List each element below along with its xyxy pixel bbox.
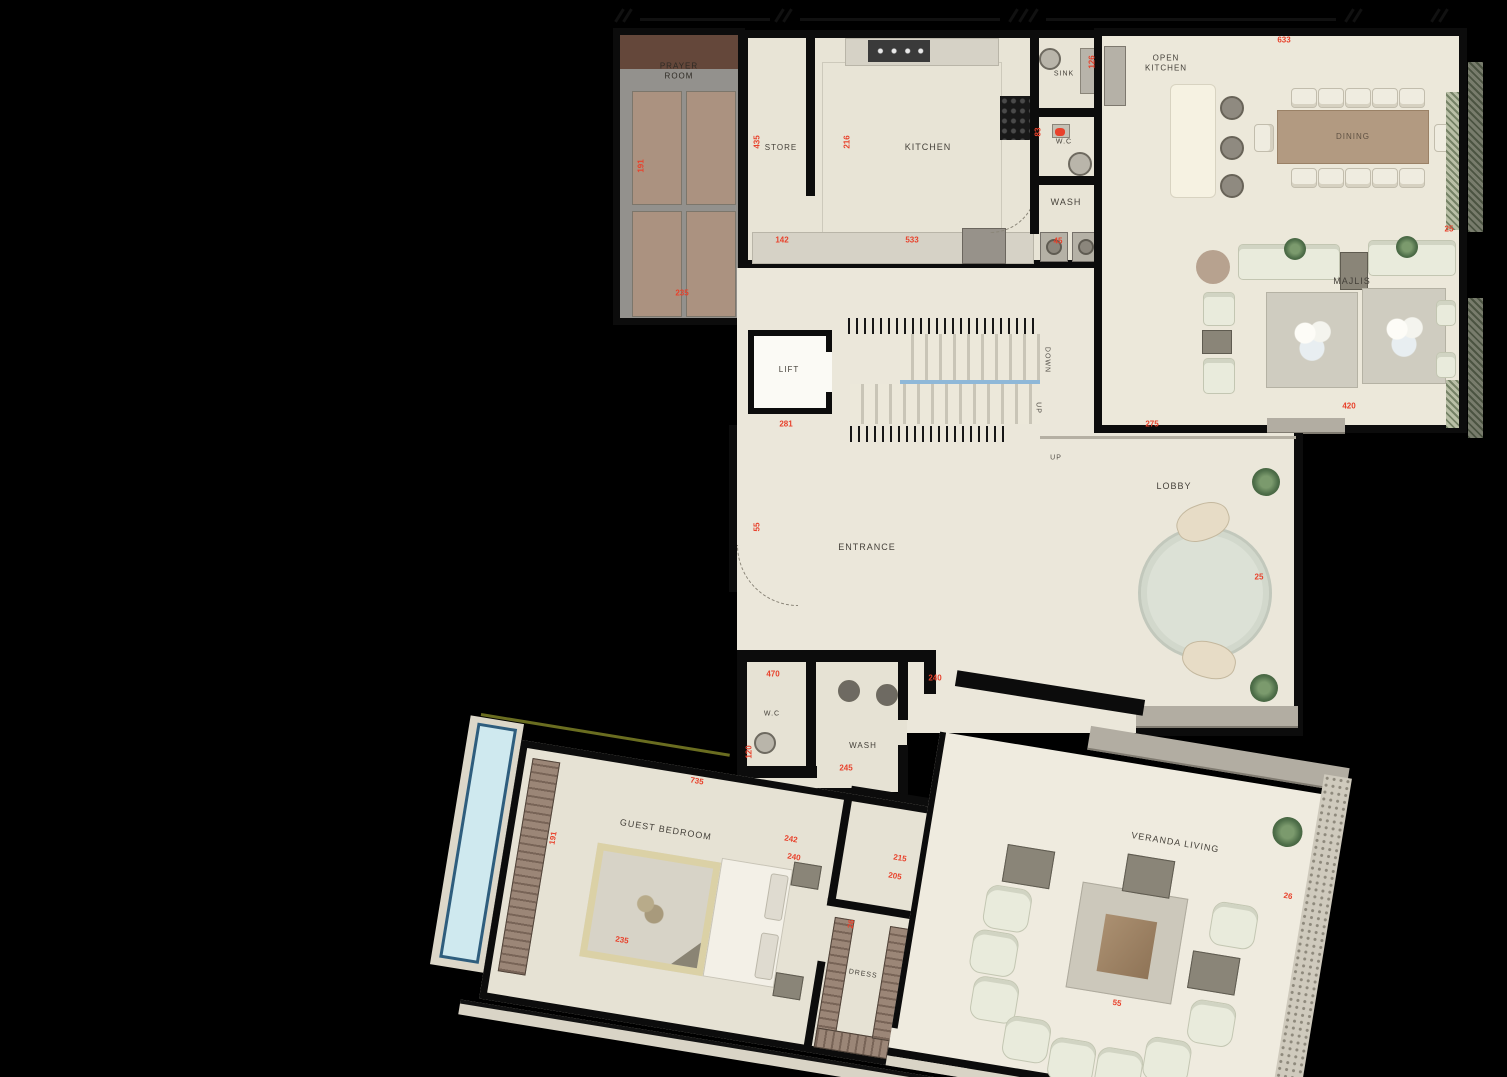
majlis-armchair	[1203, 358, 1235, 394]
stair-comb	[848, 318, 1038, 334]
store-wall	[806, 38, 815, 196]
wc-wall	[737, 650, 933, 662]
fridge-icon	[1104, 46, 1126, 106]
stairs-up-lower-label: UP	[1050, 453, 1062, 462]
stair-flight-lower	[850, 384, 1040, 424]
veranda-side-table	[1187, 950, 1241, 995]
bedroom-rug	[579, 843, 721, 977]
veranda-cushion	[981, 883, 1034, 934]
lift-door-jamb	[826, 392, 832, 414]
stairs-down-label: DOWN	[1042, 347, 1051, 373]
dining-chair	[1318, 88, 1344, 108]
cabinet-icon	[1080, 48, 1095, 94]
prayer-mat	[632, 211, 682, 317]
dining-chair	[1399, 168, 1425, 188]
dining-chair	[1345, 88, 1371, 108]
wash-fixture-icon	[838, 680, 860, 702]
pillow	[764, 873, 789, 921]
veranda-cushion	[968, 928, 1021, 979]
stair-flight-upper	[900, 334, 1040, 382]
majlis-armchair	[1203, 292, 1235, 326]
wash-wall	[898, 662, 908, 720]
wc-mid-label: W.C	[764, 709, 780, 718]
prayer-room-label: PRAYER ROOM	[644, 62, 714, 83]
entrance-label: ENTRANCE	[838, 542, 896, 554]
stool-icon	[1220, 136, 1244, 160]
wc-label: W.C	[1056, 137, 1072, 146]
dimension-line	[640, 18, 770, 21]
floor-joint-line	[1040, 436, 1296, 439]
dining-chair	[1318, 168, 1344, 188]
stool-icon	[1220, 96, 1244, 120]
wash-label: WASH	[1051, 197, 1082, 209]
round-table	[1196, 250, 1230, 284]
counter-burners-icon	[1000, 96, 1032, 140]
prayer-mat	[686, 211, 736, 317]
veranda-wing: VERANDA LIVING	[884, 702, 1371, 1077]
plant-icon	[1396, 236, 1418, 258]
wash-mid-label: WASH	[849, 741, 877, 751]
dining-label: DINING	[1336, 132, 1370, 142]
hedge-strip	[1446, 380, 1459, 428]
dining-chair	[1345, 168, 1371, 188]
rug-pattern	[626, 884, 673, 934]
dining-chair	[1254, 124, 1274, 152]
walkway	[1136, 706, 1298, 728]
entrance-wall	[729, 425, 737, 592]
flower-decor	[1289, 317, 1335, 363]
service-wall	[1030, 176, 1096, 185]
kitchen-sink-icon	[962, 228, 1006, 264]
flower-decor	[1381, 313, 1427, 359]
dimension-tick	[1028, 8, 1038, 22]
washing-machine-icon	[1040, 232, 1068, 262]
lobby-label: LOBBY	[1156, 481, 1191, 493]
wash-fixture-icon	[876, 684, 898, 706]
rug-fold	[671, 938, 701, 968]
kitchen-label: KITCHEN	[905, 142, 952, 154]
majlis-armchair	[1436, 352, 1456, 378]
majlis-side-table	[1202, 330, 1232, 354]
majlis-armchair	[1436, 300, 1456, 326]
lift-label: LIFT	[779, 365, 799, 375]
outer-hedge	[1468, 62, 1483, 232]
veranda-side-table	[1002, 844, 1056, 889]
sink-room-label: SINK	[1054, 69, 1074, 78]
prayer-mat	[686, 91, 736, 205]
dimension-line	[800, 18, 1000, 21]
veranda-cushion	[1045, 1036, 1098, 1077]
service-wall	[1030, 108, 1096, 117]
dimension-line	[1046, 18, 1336, 21]
range-stove-icon	[868, 40, 930, 62]
toilet-icon	[1055, 128, 1065, 136]
veranda-side-table	[1122, 854, 1176, 899]
floor-plan: PRAYER ROOM STORE KITCHEN SINK W.C WASH …	[0, 0, 1507, 1077]
stair-comb	[850, 426, 1008, 442]
dining-chair	[1291, 168, 1317, 188]
open-kitchen-label: OPEN KITCHEN	[1131, 54, 1201, 75]
plant-icon	[1284, 238, 1306, 260]
dining-chair	[1291, 88, 1317, 108]
dining-chair	[1399, 88, 1425, 108]
basin-icon	[1068, 152, 1092, 176]
outer-hedge	[1468, 298, 1483, 438]
service-wall	[1030, 38, 1039, 234]
veranda-cushion	[1141, 1035, 1194, 1077]
store-label: STORE	[765, 143, 797, 153]
nightstand	[790, 862, 822, 890]
dining-chair	[1372, 88, 1398, 108]
lift-door-jamb	[826, 330, 832, 352]
island-counter	[1170, 84, 1216, 198]
majlis-rug	[1362, 288, 1446, 384]
wash-wall	[924, 650, 936, 694]
stairs-up-label: UP	[1033, 402, 1042, 414]
majlis-rug	[1266, 292, 1358, 388]
majlis-label: MAJLIS	[1333, 276, 1371, 288]
stool-icon	[1220, 174, 1244, 198]
veranda-cushion	[1000, 1014, 1053, 1065]
basin-icon	[1039, 48, 1061, 70]
lobby-wall	[1294, 433, 1303, 733]
dining-chair	[1372, 168, 1398, 188]
veranda-cushion	[1185, 998, 1238, 1049]
nightstand	[772, 972, 804, 1000]
veranda-table	[1065, 882, 1188, 1005]
threshold	[1267, 418, 1345, 434]
prayer-mat	[632, 91, 682, 205]
plant-icon	[1250, 674, 1278, 702]
veranda-table-center	[1097, 914, 1158, 980]
hall-wall	[1094, 268, 1102, 348]
hedge-strip	[1446, 92, 1459, 230]
plant-icon	[1252, 468, 1280, 496]
veranda-cushion	[1207, 900, 1260, 951]
